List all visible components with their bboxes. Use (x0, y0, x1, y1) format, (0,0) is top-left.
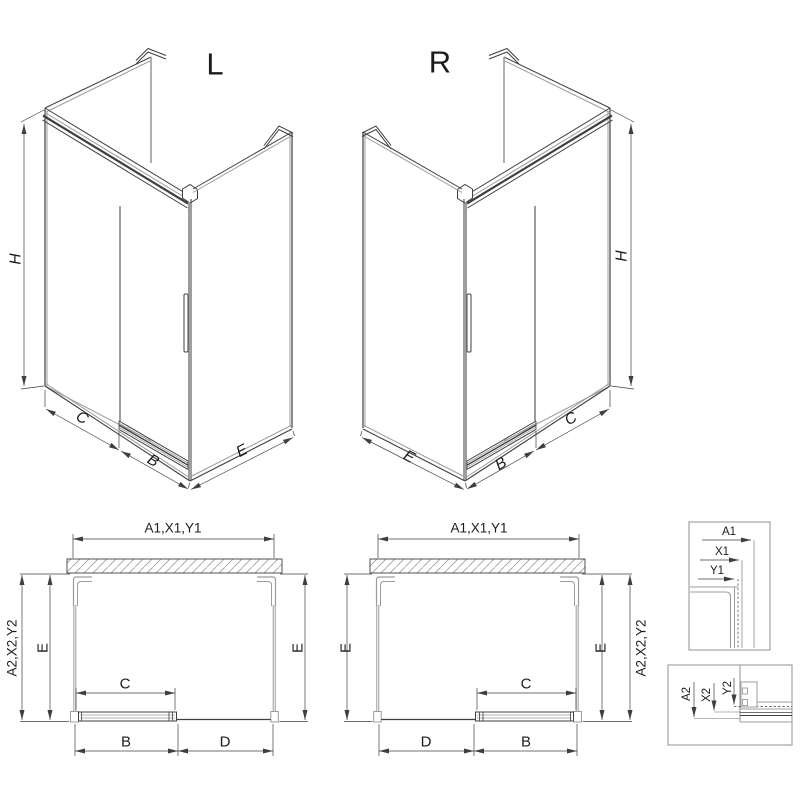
plan-right-dim-b-label: B (521, 734, 531, 751)
iso-right-dim-e-label: E (400, 447, 418, 467)
plan-right-wall-hatch (370, 559, 585, 573)
iso-right-view-label: R (429, 45, 451, 80)
plan-right-dim-a2-label: A2,X2,Y2 (634, 619, 649, 676)
detail-top-dim-x1-label: X1 (715, 546, 729, 558)
plan-left-wall-hatch (67, 559, 282, 573)
iso-left-view-label: L (206, 47, 223, 82)
technical-drawing-shower-enclosure: L H C B E R H E B C A1,X1,Y1 A2,X2,Y2 E … (0, 0, 800, 800)
detail-box-wall-profile-top (689, 522, 770, 650)
iso-right-dim-b-label: B (492, 454, 509, 474)
detail-box-threshold-profile-bottom (668, 665, 792, 745)
iso-left-3d-view (21, 49, 295, 490)
plan-right-dim-e-left-label: E (338, 643, 355, 653)
plan-left-dim-d-label: D (220, 734, 231, 751)
plan-right-dim-d-label: D (421, 734, 432, 751)
plan-left-dim-b-label: B (121, 734, 131, 751)
plan-right-dim-c-label: C (521, 676, 532, 693)
iso-right-3d-view (361, 49, 635, 490)
plan-left-dim-a2-label: A2,X2,Y2 (5, 619, 20, 676)
plan-left-dim-c-label: C (120, 676, 131, 693)
plan-left-dim-e-right-label: E (290, 643, 307, 653)
detail-top-dim-y1-label: Y1 (710, 565, 724, 577)
detail-bottom-dim-y2-label: Y2 (722, 681, 734, 695)
plan-left-dim-e-left-label: E (35, 643, 52, 653)
iso-right-dim-c-label: C (562, 408, 581, 429)
detail-top-dim-a1-label: A1 (722, 526, 736, 538)
plan-left-dim-a1-label: A1,X1,Y1 (144, 521, 201, 536)
detail-bottom-dim-a2-label: A2 (681, 687, 693, 701)
drawing-sheet: L H C B E R H E B C A1,X1,Y1 A2,X2,Y2 E … (0, 0, 800, 800)
iso-left-dim-h-label: H (8, 253, 25, 265)
detail-bottom-dim-x2-label: X2 (701, 688, 713, 702)
plan-right-dim-e-right-label: E (593, 643, 610, 653)
plan-right-dim-a1-label: A1,X1,Y1 (450, 521, 507, 536)
iso-right-dim-h-label: H (614, 250, 631, 262)
